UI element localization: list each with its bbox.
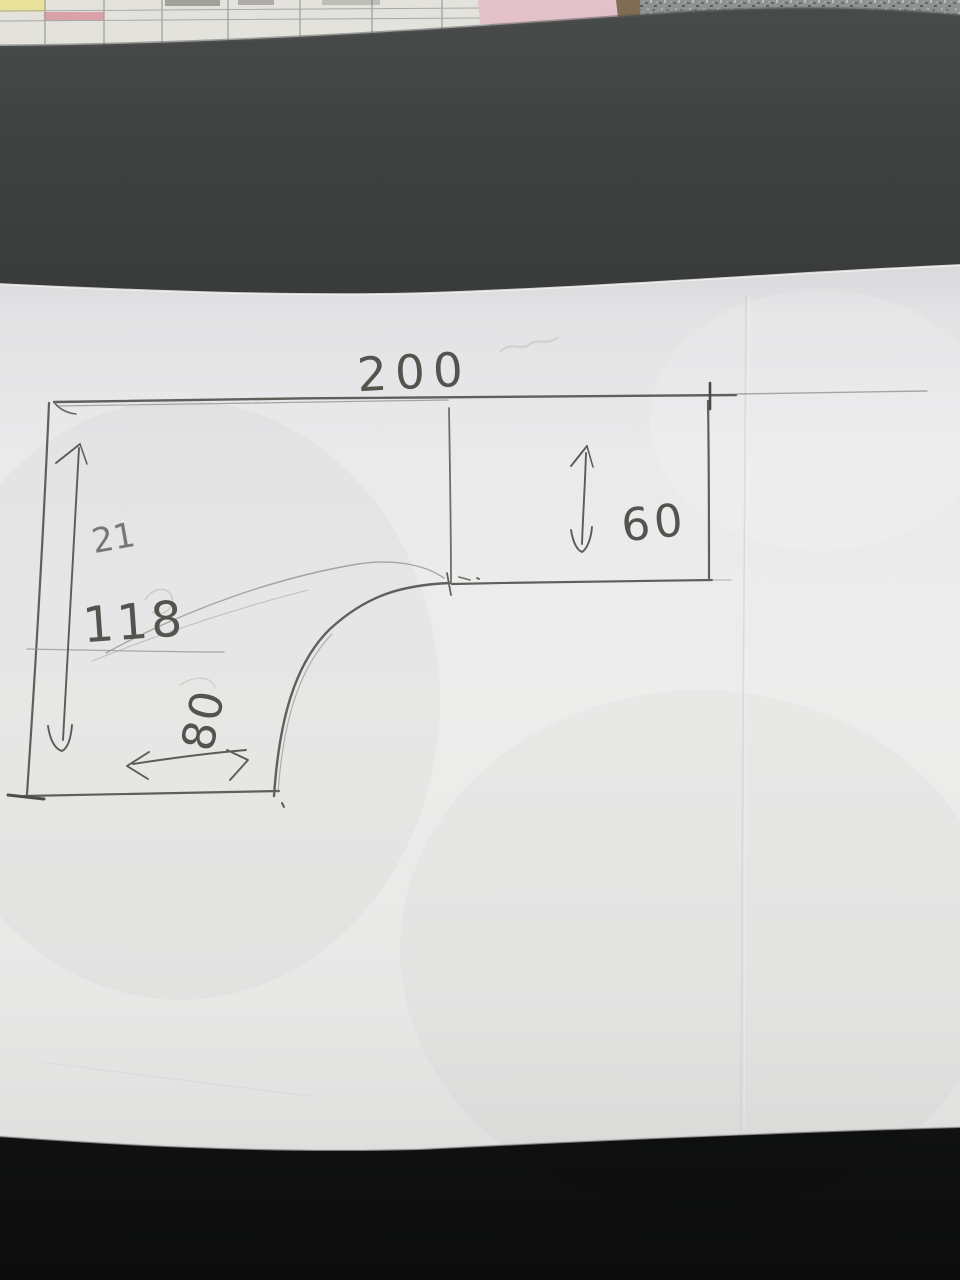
dimension-label-faint-erased: 21 bbox=[89, 515, 139, 562]
calendar-text-smudge bbox=[165, 0, 220, 6]
photo-scene: 200 60 118 80 21 bbox=[0, 0, 960, 1280]
junction-dot bbox=[477, 578, 479, 579]
paper-sheet bbox=[0, 265, 960, 1210]
calendar-text-smudge bbox=[322, 0, 380, 5]
calendar-text-smudge bbox=[238, 0, 274, 5]
dimension-label-right-depth: 60 bbox=[619, 493, 689, 553]
calendar-yellow-cell bbox=[0, 0, 45, 12]
dimension-label-left-height: 118 bbox=[81, 590, 187, 654]
calendar-pink-row bbox=[44, 12, 104, 21]
dimension-label-top-width: 200 bbox=[356, 342, 472, 403]
sketch-photo-svg: 200 60 118 80 21 bbox=[0, 0, 960, 1280]
lshape-right-edge bbox=[708, 401, 709, 578]
